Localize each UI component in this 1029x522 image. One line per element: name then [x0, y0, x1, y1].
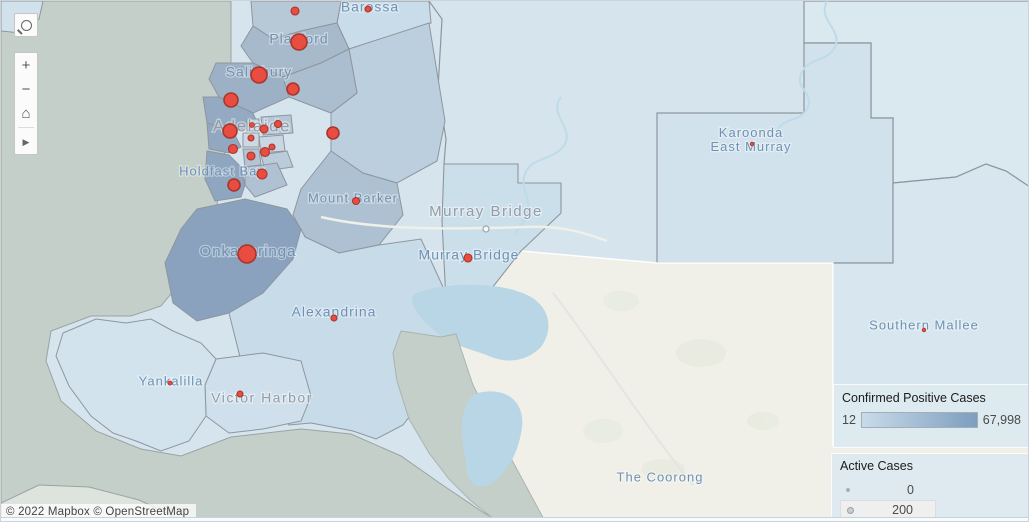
active-case-mark[interactable]: [353, 198, 360, 205]
map-viewport[interactable]: BarossaPlayfordSalisburyHoldfast BayMoun…: [0, 0, 1029, 522]
city-label: Victor Harbor: [211, 390, 313, 406]
size-dot-small: [846, 488, 850, 492]
active-case-mark[interactable]: [247, 152, 255, 160]
legend-max-value: 67,998: [983, 413, 1021, 427]
region-label: The Coorong: [617, 469, 704, 484]
active-case-mark[interactable]: [248, 135, 254, 141]
active-case-mark[interactable]: [260, 125, 268, 133]
active-case-mark[interactable]: [228, 179, 240, 191]
active-case-mark[interactable]: [224, 93, 238, 107]
size-dot-large: [847, 507, 854, 514]
active-case-mark[interactable]: [238, 245, 256, 263]
bottom-scroll-strip: [1, 517, 1028, 521]
home-icon: ⌂: [21, 106, 30, 121]
legend-size-label-200: 200: [892, 503, 913, 517]
active-case-mark[interactable]: [922, 328, 926, 332]
legend-size-label-0: 0: [907, 483, 914, 497]
legend-active-title: Active Cases: [840, 459, 1021, 473]
active-case-mark[interactable]: [275, 121, 282, 128]
legend-active-cases: Active Cases 0 200: [831, 453, 1029, 522]
active-case-mark[interactable]: [223, 124, 237, 138]
region-label: Holdfast Bay: [179, 163, 265, 178]
zoom-in-button[interactable]: +: [15, 53, 37, 77]
active-case-mark[interactable]: [291, 7, 299, 15]
active-case-mark[interactable]: [365, 6, 371, 12]
legend-confirmed-cases: Confirmed Positive Cases 12 67,998: [833, 384, 1029, 448]
active-case-mark[interactable]: [291, 34, 307, 50]
color-gradient-bar: [861, 412, 978, 428]
toolbar-divider: [18, 127, 34, 128]
active-case-mark[interactable]: [257, 169, 267, 179]
active-case-mark[interactable]: [464, 254, 472, 262]
city-marker: [483, 226, 489, 232]
legend-size-row-0[interactable]: 0: [840, 480, 936, 500]
active-case-mark[interactable]: [261, 148, 270, 157]
zoom-home-button[interactable]: ⌂: [15, 101, 37, 125]
active-case-mark[interactable]: [168, 381, 172, 385]
minus-icon: −: [22, 81, 31, 98]
active-case-mark[interactable]: [251, 67, 267, 83]
active-case-mark[interactable]: [229, 145, 238, 154]
legend-confirmed-title: Confirmed Positive Cases: [842, 391, 1021, 405]
zoom-out-button[interactable]: −: [15, 77, 37, 101]
active-case-mark[interactable]: [327, 127, 339, 139]
active-case-mark[interactable]: [250, 123, 255, 128]
pan-mode-button[interactable]: ▶: [15, 130, 37, 154]
plus-icon: +: [22, 57, 31, 74]
city-label: Murray Bridge: [429, 203, 543, 220]
map-nav-controls[interactable]: + − ⌂ ▶: [14, 52, 38, 155]
pan-arrow-icon: ▶: [23, 137, 30, 148]
active-case-mark[interactable]: [331, 315, 337, 321]
legend-min-value: 12: [842, 413, 856, 427]
region-label: KaroondaEast Murray: [710, 125, 791, 154]
active-case-mark[interactable]: [287, 83, 299, 95]
active-case-mark[interactable]: [237, 391, 243, 397]
active-case-mark[interactable]: [750, 142, 754, 146]
search-icon: [21, 20, 32, 31]
map-search-button[interactable]: [14, 13, 38, 37]
active-case-mark[interactable]: [269, 144, 275, 150]
